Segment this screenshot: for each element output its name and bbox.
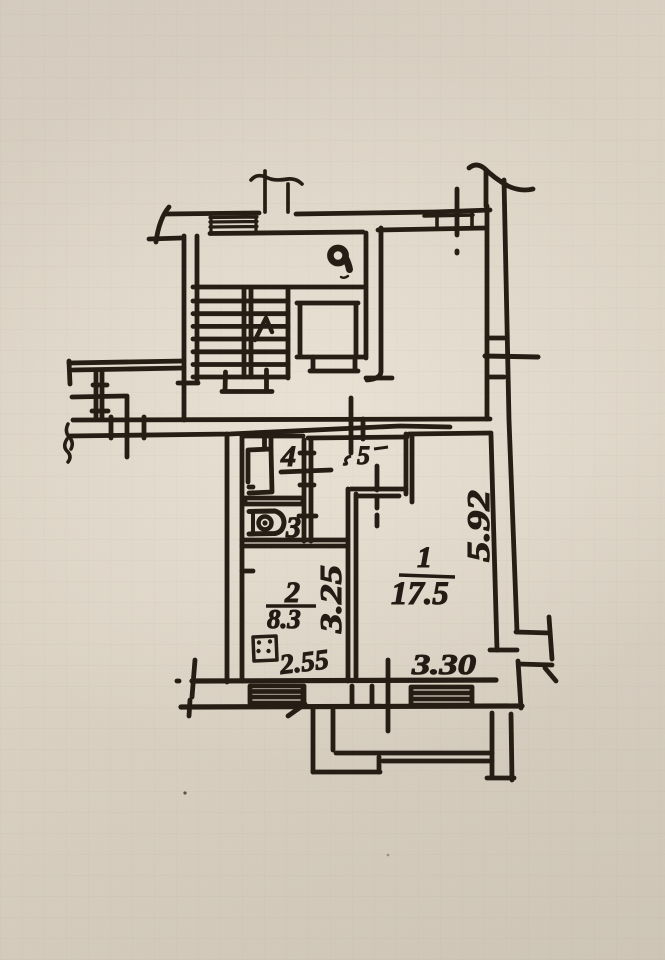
- svg-text:5.92: 5.92: [460, 490, 496, 562]
- svg-text:5: 5: [357, 441, 370, 470]
- svg-text:4: 4: [280, 440, 296, 473]
- svg-text:3.25: 3.25: [313, 565, 348, 634]
- svg-text:1: 1: [417, 541, 432, 574]
- svg-text:17.5: 17.5: [391, 576, 449, 612]
- svg-text:3.30: 3.30: [411, 650, 476, 681]
- svg-text:2.55: 2.55: [277, 644, 330, 681]
- svg-text:8.3: 8.3: [267, 604, 301, 634]
- svg-text:3: 3: [285, 511, 301, 544]
